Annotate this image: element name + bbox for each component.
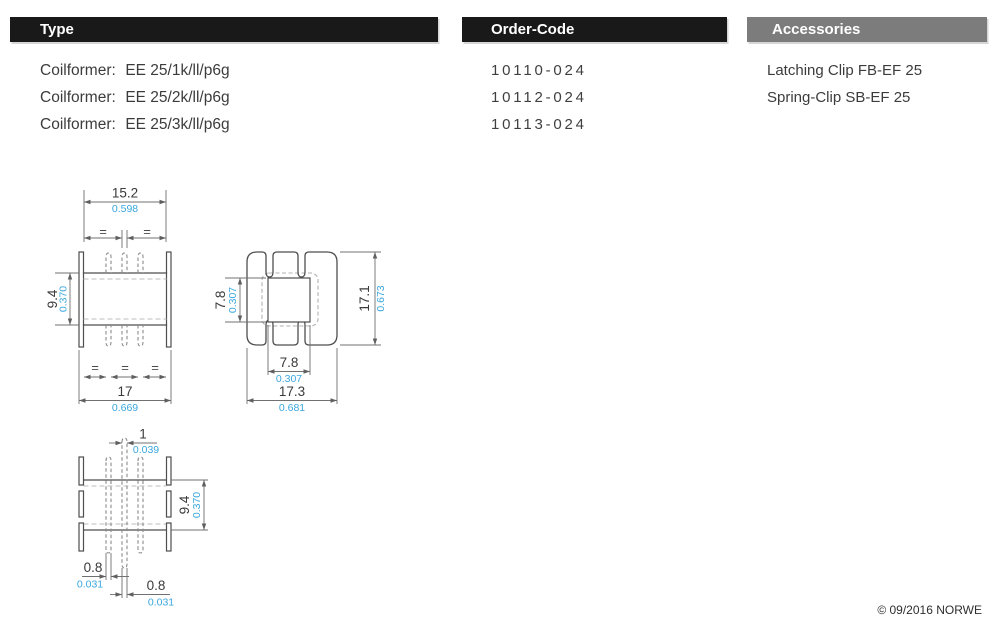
type-row-1-prefix: Coilformer: — [40, 62, 121, 80]
accessory-row-2: Spring-Clip SB-EF 25 — [767, 89, 910, 106]
pin-width-right-mm: 0.8 — [147, 578, 166, 593]
type-row-1-name: EE 25/1k/ll/p6g — [125, 62, 229, 79]
pin-width-left-inch: 0.031 — [77, 579, 103, 591]
type-row-3-prefix: Coilformer: — [40, 116, 121, 134]
pin-width-right-inch: 0.031 — [148, 597, 174, 609]
accessory-row-1: Latching Clip FB-EF 25 — [767, 62, 922, 79]
order-code-column-header-bar: Order-Code — [462, 17, 727, 42]
order-code-column-header-label: Order-Code — [491, 21, 574, 38]
front-equal-mark-bottom-3: = — [151, 360, 159, 375]
type-row-2-prefix: Coilformer: — [40, 89, 121, 107]
front-equal-mark-top-right: = — [143, 224, 151, 239]
front-width-bottom-inch: 0.669 — [112, 402, 138, 414]
front-equal-mark-top-left: = — [99, 224, 107, 239]
side-overall-height-mm: 17.1 — [357, 285, 372, 311]
technical-drawings: 15.2 0.598 = = — [0, 170, 1000, 633]
type-row-1: Coilformer: EE 25/1k/ll/p6g — [40, 62, 230, 80]
front-view-drawing: 15.2 0.598 = = — [45, 186, 171, 415]
side-window-height-inch: 0.307 — [227, 287, 239, 313]
pin-body-height-inch: 0.370 — [191, 492, 203, 518]
side-winding-window — [268, 278, 310, 322]
type-row-2-name: EE 25/2k/ll/p6g — [125, 89, 229, 106]
type-column-header-label: Type — [40, 21, 74, 38]
order-code-row-1: 10110-024 — [491, 62, 587, 79]
pin-view-pins — [106, 438, 143, 568]
front-equal-mark-bottom-2: = — [121, 360, 129, 375]
side-overall-width-inch: 0.681 — [279, 402, 305, 414]
accessories-column-header-label: Accessories — [772, 21, 860, 38]
side-window-width-mm: 7.8 — [280, 355, 299, 370]
front-equal-mark-bottom-1: = — [91, 360, 99, 375]
type-column-header-bar: Type — [10, 17, 438, 42]
front-left-flange — [79, 252, 84, 347]
pin-width-top-inch: 0.039 — [133, 444, 159, 456]
side-view-drawing: 7.8 0.307 17.1 0.673 7.8 0.307 17.3 0.68… — [213, 252, 387, 414]
order-code-row-3: 10113-024 — [491, 116, 587, 133]
order-code-row-2: 10112-024 — [491, 89, 587, 106]
type-row-3: Coilformer: EE 25/3k/ll/p6g — [40, 116, 230, 134]
side-overall-width-mm: 17.3 — [279, 384, 305, 399]
front-pins — [106, 253, 143, 346]
type-row-3-name: EE 25/3k/ll/p6g — [125, 116, 229, 133]
front-width-top-inch: 0.598 — [112, 203, 138, 215]
front-width-top-mm: 15.2 — [112, 186, 138, 201]
pin-width-left-mm: 0.8 — [84, 560, 103, 575]
pin-view-flange-tabs — [79, 457, 171, 551]
copyright-notice: © 09/2016 NORWE — [877, 603, 982, 617]
datasheet-page: Type Order-Code Accessories Coilformer: … — [0, 0, 1000, 633]
accessories-column-header-bar: Accessories — [747, 17, 987, 42]
pin-width-top-mm: 1 — [139, 427, 147, 442]
front-right-flange — [167, 252, 172, 347]
front-height-left-inch: 0.370 — [58, 286, 70, 312]
type-row-2: Coilformer: EE 25/2k/ll/p6g — [40, 89, 230, 107]
pin-view-drawing: 1 0.039 — [77, 427, 208, 609]
side-overall-height-inch: 0.673 — [375, 285, 387, 311]
pin-body-height-mm: 9.4 — [177, 495, 192, 514]
side-window-height-mm: 7.8 — [213, 291, 228, 310]
front-width-bottom-mm: 17 — [117, 384, 132, 399]
